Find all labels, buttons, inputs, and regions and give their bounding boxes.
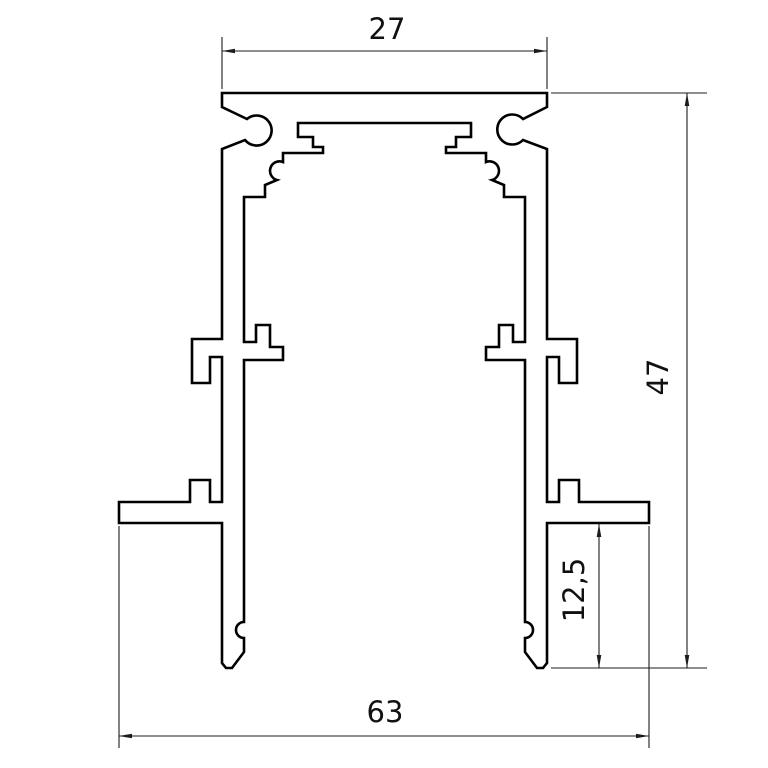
arrowhead <box>597 655 602 668</box>
arrowhead <box>685 655 690 668</box>
drawing-canvas: 27 47 12,5 63 <box>0 0 768 768</box>
arrowhead <box>534 49 547 54</box>
arrowhead <box>222 49 235 54</box>
arrowhead <box>119 734 132 739</box>
dimension-label-bottom-width: 63 <box>367 695 404 729</box>
arrowhead <box>597 524 602 537</box>
dimension-label-top-width: 27 <box>369 12 406 46</box>
dimension-top-width: 27 <box>222 12 547 89</box>
arrowhead <box>685 93 690 106</box>
technical-drawing: 27 47 12,5 63 <box>0 0 768 768</box>
dimension-foot-height: 12,5 <box>557 524 601 668</box>
dimension-label-foot-height: 12,5 <box>557 558 591 623</box>
dimension-label-overall-height: 47 <box>641 359 675 396</box>
arrowhead <box>636 734 649 739</box>
